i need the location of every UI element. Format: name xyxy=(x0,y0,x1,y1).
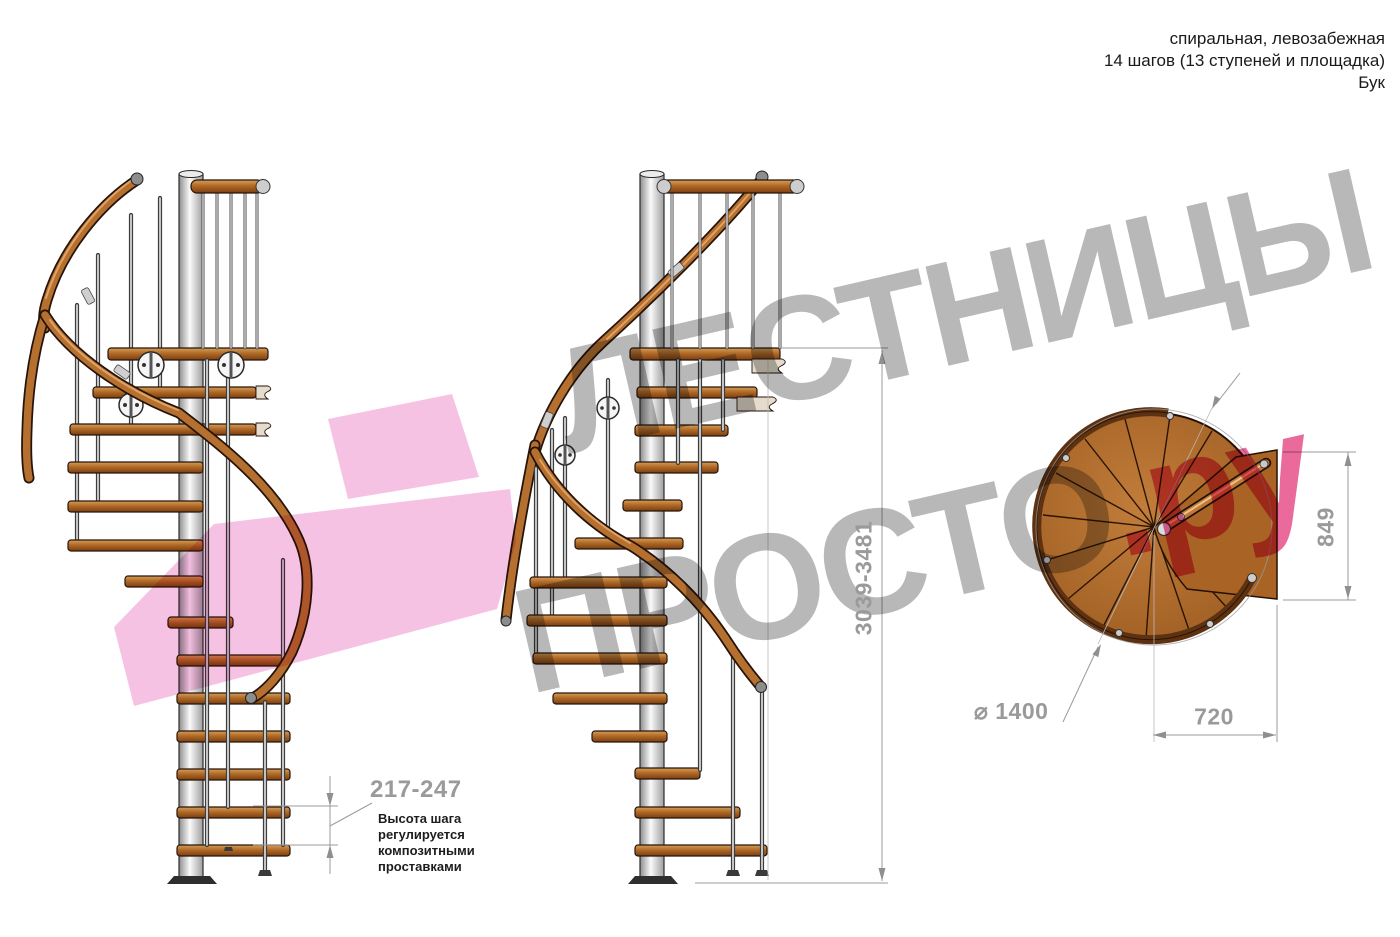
spec-line-material: Бук xyxy=(1104,72,1385,94)
step-height-note: Высота шага регулируется композитными пр… xyxy=(378,811,484,874)
dim-label-step-height: 217-247 xyxy=(370,776,462,804)
technical-drawing-page: ЛЕСТНИЦЫ ПРОСТО.ру спиральная, левозабеж… xyxy=(0,0,1400,937)
spec-line-steps: 14 шагов (13 ступеней и площадка) xyxy=(1104,50,1385,72)
dim-label-diameter: ⌀ 1400 xyxy=(974,698,1048,725)
dim-label-plan-side: 849 xyxy=(1313,507,1340,547)
logo-square xyxy=(328,394,479,499)
diameter-symbol: ⌀ xyxy=(974,698,988,724)
diameter-value: 1400 xyxy=(995,698,1048,724)
spec-line-type: спиральная, левозабежная xyxy=(1104,28,1385,50)
dim-label-total-height: 3039-3481 xyxy=(851,521,878,636)
dim-label-plan-width: 720 xyxy=(1194,704,1234,731)
spec-header: спиральная, левозабежная 14 шагов (13 ст… xyxy=(1104,28,1385,94)
